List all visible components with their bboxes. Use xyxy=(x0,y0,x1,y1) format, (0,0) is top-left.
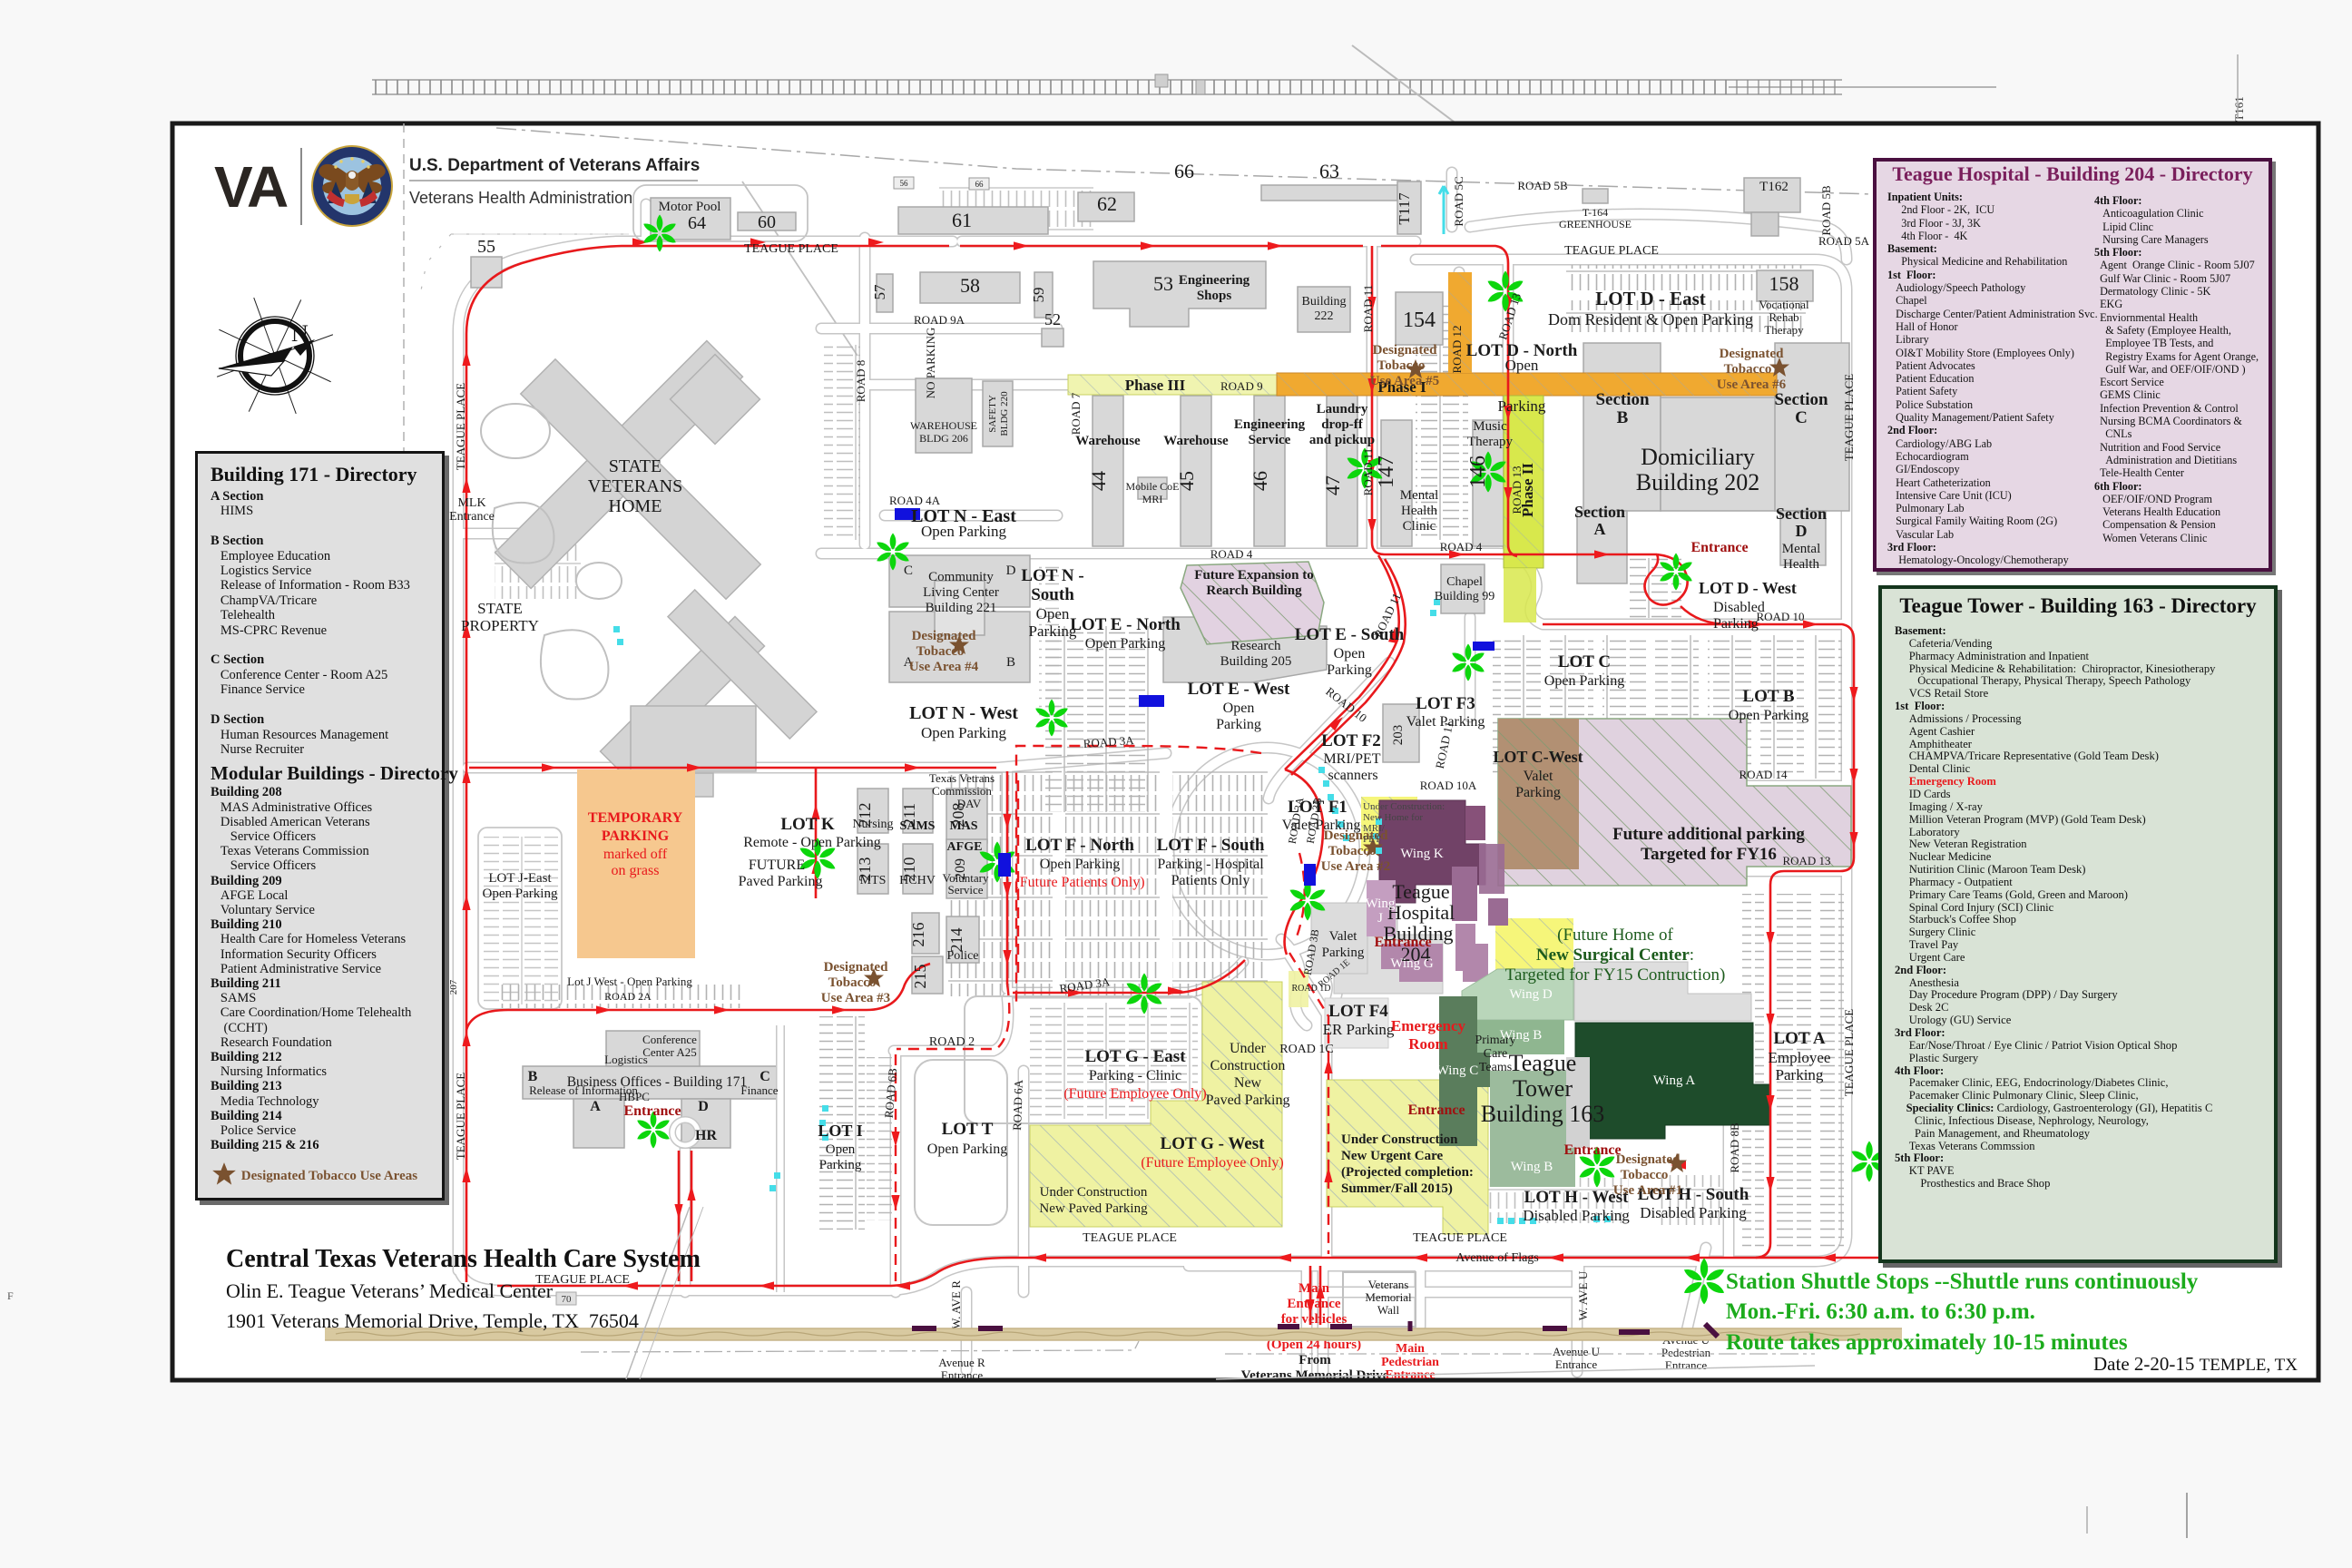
svg-text:146: 146 xyxy=(1466,456,1490,488)
svg-text:TEAGUE PLACE: TEAGUE PLACE xyxy=(1842,1009,1856,1096)
svg-text:158: 158 xyxy=(1769,272,1799,295)
svg-text:Employee: Employee xyxy=(1769,1049,1831,1066)
svg-text:Domiciliary: Domiciliary xyxy=(1641,444,1755,470)
svg-text:(Future Employee Only): (Future Employee Only) xyxy=(1063,1086,1206,1102)
svg-text:Building: Building xyxy=(1301,295,1346,309)
svg-text:Logistics: Logistics xyxy=(604,1053,648,1066)
svg-text:Center A25: Center A25 xyxy=(642,1045,697,1059)
svg-text:Research: Research xyxy=(1231,639,1281,653)
svg-text:Paved Parking: Paved Parking xyxy=(739,874,823,889)
svg-text:Open Parking: Open Parking xyxy=(927,1142,1007,1157)
svg-text:Tobacco: Tobacco xyxy=(1377,358,1426,373)
svg-text:Building 99: Building 99 xyxy=(1435,590,1495,603)
svg-text:Use Area #1: Use Area #1 xyxy=(1613,1183,1682,1198)
svg-text:Date 2-20-15 TEMPLE, TX: Date 2-20-15 TEMPLE, TX xyxy=(2093,1353,2298,1375)
svg-text:ROAD 10A: ROAD 10A xyxy=(1420,779,1477,792)
svg-text:Designated: Designated xyxy=(912,629,976,643)
svg-text:63: 63 xyxy=(1319,160,1339,182)
svg-text:Avenue of Flags: Avenue of Flags xyxy=(1455,1251,1539,1265)
svg-text:New Paved Parking: New Paved Parking xyxy=(1039,1201,1148,1216)
svg-text:Use Area #2: Use Area #2 xyxy=(1321,859,1390,874)
svg-text:TEAGUE PLACE: TEAGUE PLACE xyxy=(1413,1231,1507,1245)
svg-text:ROAD 7: ROAD 7 xyxy=(1069,392,1083,435)
svg-text:Open Parking: Open Parking xyxy=(1040,857,1120,872)
svg-text:Service: Service xyxy=(948,883,984,897)
svg-text:Targeted for FY16: Targeted for FY16 xyxy=(1641,845,1777,864)
svg-text:LOT G - West: LOT G - West xyxy=(1161,1134,1266,1153)
svg-text:Entrance: Entrance xyxy=(1374,935,1431,950)
svg-text:LOT J-East: LOT J-East xyxy=(488,871,552,886)
svg-text:Disabled Parking: Disabled Parking xyxy=(1523,1207,1630,1224)
svg-text:55: 55 xyxy=(477,237,495,257)
svg-text:Open: Open xyxy=(1505,357,1539,374)
svg-text:Station Shuttle Stops --Shuttl: Station Shuttle Stops --Shuttle runs con… xyxy=(1726,1269,2199,1294)
svg-text:T117: T117 xyxy=(1396,192,1413,225)
svg-text:Parking: Parking xyxy=(1216,717,1261,732)
svg-text:Rearch Building: Rearch Building xyxy=(1206,583,1302,598)
svg-text:N: N xyxy=(291,320,309,347)
svg-text:on grass: on grass xyxy=(612,863,660,878)
svg-text:Parking: Parking xyxy=(1498,397,1546,415)
svg-text:Tower: Tower xyxy=(1513,1075,1573,1102)
svg-text:PET: PET xyxy=(1363,834,1381,845)
svg-text:Teague: Teague xyxy=(1509,1050,1577,1076)
svg-text:Tobacco: Tobacco xyxy=(1724,362,1772,377)
svg-text:B: B xyxy=(528,1069,538,1084)
svg-text:ROAD 9: ROAD 9 xyxy=(1220,379,1263,393)
svg-text:LOT F2: LOT F2 xyxy=(1321,731,1381,750)
svg-text:Wall: Wall xyxy=(1377,1303,1400,1317)
svg-text:Use Area #3: Use Area #3 xyxy=(821,991,890,1005)
svg-text:Use Area #4: Use Area #4 xyxy=(909,660,979,674)
svg-text:Building 205: Building 205 xyxy=(1220,654,1292,669)
svg-text:Phase III: Phase III xyxy=(1125,377,1186,394)
svg-text:Parking: Parking xyxy=(819,1158,862,1172)
svg-text:TEAGUE PLACE: TEAGUE PLACE xyxy=(1564,244,1659,258)
svg-text:VA: VA xyxy=(214,154,288,220)
svg-text:Laundry: Laundry xyxy=(1317,402,1368,416)
svg-text:J: J xyxy=(1377,911,1383,926)
svg-text:207: 207 xyxy=(448,979,459,995)
svg-text:Tobacco: Tobacco xyxy=(1621,1168,1669,1182)
svg-text:Open: Open xyxy=(1334,646,1366,661)
svg-text:ROAD 5B: ROAD 5B xyxy=(1517,179,1568,192)
svg-text:Designated: Designated xyxy=(824,960,888,975)
svg-text:Designated: Designated xyxy=(1373,343,1437,358)
svg-text:Teague: Teague xyxy=(1392,880,1449,903)
svg-text:Disabled: Disabled xyxy=(1713,600,1765,615)
svg-text:Building 202: Building 202 xyxy=(1636,469,1760,495)
svg-text:STATE: STATE xyxy=(477,600,523,617)
svg-text:Disabled Parking: Disabled Parking xyxy=(1640,1204,1747,1221)
svg-text:Avenue U: Avenue U xyxy=(1553,1345,1601,1358)
svg-text:Community: Community xyxy=(928,570,994,584)
svg-text:LOT E - West: LOT E - West xyxy=(1188,680,1290,699)
svg-text:Open: Open xyxy=(1223,701,1255,716)
svg-text:Tobacco: Tobacco xyxy=(916,644,965,659)
svg-text:Wing A: Wing A xyxy=(1653,1073,1696,1088)
svg-text:(Future Patients Only): (Future Patients Only) xyxy=(1014,875,1144,890)
svg-text:Section: Section xyxy=(1774,390,1828,409)
svg-text:Pedestrian: Pedestrian xyxy=(1661,1346,1711,1359)
svg-text:C: C xyxy=(904,563,913,578)
svg-text:Avenue R: Avenue R xyxy=(938,1356,985,1369)
svg-text:216: 216 xyxy=(909,923,927,947)
svg-text:Dom Resident & Open Parking: Dom Resident & Open Parking xyxy=(1548,310,1753,328)
svg-text:LOT D - East: LOT D - East xyxy=(1595,288,1706,309)
svg-text:LOT F3: LOT F3 xyxy=(1416,694,1475,713)
svg-text:ROAD 11: ROAD 11 xyxy=(1361,448,1375,496)
svg-text:Warehouse: Warehouse xyxy=(1075,434,1141,448)
svg-text:Motor Pool: Motor Pool xyxy=(659,200,721,214)
svg-text:Mental: Mental xyxy=(1400,488,1439,503)
svg-text:Wing D: Wing D xyxy=(1509,987,1552,1002)
svg-text:LOT G - East: LOT G - East xyxy=(1084,1047,1186,1066)
svg-text:C: C xyxy=(1795,408,1808,427)
svg-text:LOT C: LOT C xyxy=(1558,652,1611,671)
svg-text:Parking: Parking xyxy=(1713,616,1759,632)
svg-text:Summer/Fall 2015): Summer/Fall 2015) xyxy=(1341,1181,1453,1196)
svg-text:New Surgical Center:: New Surgical Center: xyxy=(1536,946,1694,965)
svg-text:LOT T: LOT T xyxy=(942,1120,994,1139)
svg-text:Valet: Valet xyxy=(1524,769,1553,784)
svg-text:Section: Section xyxy=(1574,503,1625,521)
svg-text:Open Parking: Open Parking xyxy=(921,523,1006,540)
svg-text:Section: Section xyxy=(1595,390,1650,409)
svg-text:D: D xyxy=(1796,522,1808,540)
svg-text:Wing G: Wing G xyxy=(1390,956,1433,971)
svg-text:Vocational: Vocational xyxy=(1759,298,1809,311)
svg-text:PROPERTY: PROPERTY xyxy=(461,617,539,634)
svg-text:New Home for: New Home for xyxy=(1363,812,1423,823)
svg-text:ROAD 5B: ROAD 5B xyxy=(1819,185,1833,236)
svg-text:Entrance: Entrance xyxy=(1665,1358,1707,1372)
svg-text:52: 52 xyxy=(1044,310,1061,328)
svg-text:Lot J West - Open Parking: Lot J West - Open Parking xyxy=(567,975,692,988)
svg-text:66: 66 xyxy=(1174,160,1194,182)
svg-text:(Future Home of: (Future Home of xyxy=(1557,926,1673,945)
svg-text:D: D xyxy=(1006,563,1016,578)
svg-text:ROAD 9A: ROAD 9A xyxy=(914,313,965,327)
svg-text:LOT B: LOT B xyxy=(1742,687,1795,706)
svg-text:Engineering: Engineering xyxy=(1234,417,1306,432)
svg-text:Open Parking: Open Parking xyxy=(483,887,558,901)
svg-text:Under Construction:: Under Construction: xyxy=(1363,801,1445,812)
svg-text:MTS: MTS xyxy=(860,874,887,887)
svg-text:Pedestrian: Pedestrian xyxy=(1381,1356,1439,1369)
svg-text:Nursing: Nursing xyxy=(852,818,893,831)
svg-text:Wing: Wing xyxy=(1366,897,1396,911)
svg-text:Tobacco: Tobacco xyxy=(828,975,877,990)
svg-text:STATE: STATE xyxy=(609,456,661,476)
svg-text:AFGE: AFGE xyxy=(947,840,983,854)
svg-text:64: 64 xyxy=(688,213,706,233)
svg-text:Parking - Hospital: Parking - Hospital xyxy=(1157,857,1264,872)
svg-text:Entrance: Entrance xyxy=(449,510,495,524)
svg-text:Parking: Parking xyxy=(1327,662,1372,678)
svg-text:ROAD 5A: ROAD 5A xyxy=(1818,234,1870,248)
svg-text:NO PARKING: NO PARKING xyxy=(924,328,937,399)
svg-text:Mobile CoE: Mobile CoE xyxy=(1126,480,1180,493)
svg-text:A: A xyxy=(590,1099,601,1114)
svg-text:MLK: MLK xyxy=(457,496,485,510)
svg-text:Mental: Mental xyxy=(1782,542,1821,556)
svg-text:scanners: scanners xyxy=(1328,768,1377,783)
svg-text:Memorial: Memorial xyxy=(1365,1290,1412,1304)
svg-text:Open: Open xyxy=(826,1142,856,1157)
svg-text:LOT F - South: LOT F - South xyxy=(1157,836,1265,855)
svg-text:Police: Police xyxy=(947,949,979,963)
svg-text:LOT F - North: LOT F - North xyxy=(1025,836,1134,855)
svg-text:Open Parking: Open Parking xyxy=(1729,708,1808,723)
svg-text:ROAD 4: ROAD 4 xyxy=(1440,540,1483,554)
svg-text:A: A xyxy=(1594,520,1606,538)
svg-text:LOT A: LOT A xyxy=(1773,1029,1825,1048)
svg-text:Designated: Designated xyxy=(1720,347,1784,361)
svg-text:Patients Only: Patients Only xyxy=(1171,873,1250,888)
svg-text:Entrance: Entrance xyxy=(1287,1297,1341,1311)
svg-text:66: 66 xyxy=(975,180,985,189)
svg-text:HCHV: HCHV xyxy=(899,874,936,887)
svg-text:Open Parking: Open Parking xyxy=(921,724,1006,741)
svg-text:ROAD 8: ROAD 8 xyxy=(854,360,867,403)
svg-text:Conference: Conference xyxy=(642,1033,697,1046)
svg-text:TEMPORARY: TEMPORARY xyxy=(588,810,683,826)
svg-text:Care: Care xyxy=(1484,1047,1507,1061)
svg-text:ROAD 14: ROAD 14 xyxy=(1739,768,1788,781)
svg-text:South: South xyxy=(1031,585,1074,604)
svg-text:58: 58 xyxy=(960,274,980,297)
svg-text:Open Parking: Open Parking xyxy=(1544,673,1624,689)
svg-text:Remote - Open Parking: Remote - Open Parking xyxy=(743,835,881,850)
svg-text:BLDG 220: BLDG 220 xyxy=(999,391,1010,436)
svg-text:BLDG 206: BLDG 206 xyxy=(919,432,968,445)
svg-text:MRI/PET: MRI/PET xyxy=(1323,751,1380,767)
svg-text:Therapy: Therapy xyxy=(1764,323,1804,337)
svg-text:Targeted for FY15 Contruction): Targeted for FY15 Contruction) xyxy=(1505,965,1726,985)
svg-text:Rehab: Rehab xyxy=(1769,310,1798,324)
svg-text:Entrance: Entrance xyxy=(623,1103,681,1119)
svg-text:WAREHOUSE: WAREHOUSE xyxy=(910,419,977,432)
svg-text:(Projected completion:: (Projected completion: xyxy=(1341,1165,1474,1180)
svg-text:Entrance: Entrance xyxy=(1690,540,1748,555)
svg-text:147: 147 xyxy=(1375,456,1398,488)
svg-text:215: 215 xyxy=(911,965,929,989)
svg-text:ROAD 4A: ROAD 4A xyxy=(889,494,941,507)
svg-text:ROAD 5C: ROAD 5C xyxy=(1452,176,1465,226)
svg-text:Veterans: Veterans xyxy=(1368,1278,1409,1291)
svg-text:Chapel: Chapel xyxy=(1446,575,1483,589)
svg-text:Mon.-Fri. 6:30 a.m. to 6:30 p.: Mon.-Fri. 6:30 a.m. to 6:30 p.m. xyxy=(1726,1299,2035,1324)
svg-text:Emergency: Emergency xyxy=(1391,1017,1466,1034)
svg-text:FUTURE: FUTURE xyxy=(749,857,805,873)
svg-text:Parking: Parking xyxy=(1776,1066,1824,1083)
svg-text:57: 57 xyxy=(871,284,888,300)
svg-text:Entrance: Entrance xyxy=(1563,1142,1621,1158)
svg-text:VETERANS: VETERANS xyxy=(588,476,682,496)
svg-text:Paved Parking: Paved Parking xyxy=(1206,1093,1290,1108)
svg-text:154: 154 xyxy=(1403,309,1436,332)
svg-text:Under Construction: Under Construction xyxy=(1040,1185,1148,1200)
svg-text:Construction: Construction xyxy=(1210,1058,1286,1073)
svg-text:T162: T162 xyxy=(1759,180,1788,194)
svg-text:MRI: MRI xyxy=(1142,493,1163,505)
svg-text:Shops: Shops xyxy=(1197,289,1232,303)
svg-text:F: F xyxy=(7,1289,14,1302)
svg-text:Valet: Valet xyxy=(1329,929,1358,944)
svg-text:Under: Under xyxy=(1230,1041,1267,1056)
svg-text:Under Construction: Under Construction xyxy=(1341,1132,1458,1147)
svg-text:LOT D - West: LOT D - West xyxy=(1699,579,1797,597)
svg-text:Clinic: Clinic xyxy=(1403,519,1436,534)
svg-text:Health: Health xyxy=(1783,557,1819,572)
svg-text:B: B xyxy=(1617,408,1629,427)
svg-text:Entrance: Entrance xyxy=(1407,1102,1465,1118)
svg-text:Veterans Health Administration: Veterans Health Administration xyxy=(409,189,632,207)
svg-text:Engineering: Engineering xyxy=(1179,273,1250,288)
svg-text:MAS: MAS xyxy=(949,819,977,833)
svg-text:Therapy: Therapy xyxy=(1467,435,1513,449)
svg-text:ROAD 8B: ROAD 8B xyxy=(1728,1122,1741,1173)
svg-text:47: 47 xyxy=(1321,475,1344,495)
svg-text:TEAGUE PLACE: TEAGUE PLACE xyxy=(744,242,838,256)
svg-text:Texas Vetrans: Texas Vetrans xyxy=(929,771,995,785)
svg-text:GREENHOUSE: GREENHOUSE xyxy=(1559,218,1632,230)
svg-text:D: D xyxy=(698,1099,709,1114)
svg-text:ER Parking: ER Parking xyxy=(1323,1021,1395,1038)
svg-text:Teams: Teams xyxy=(1479,1061,1512,1074)
svg-text:Wing B: Wing B xyxy=(1511,1160,1553,1174)
svg-text:Parking - Clinic: Parking - Clinic xyxy=(1089,1068,1181,1083)
svg-text:203: 203 xyxy=(1391,725,1406,746)
svg-text:ROAD 2A: ROAD 2A xyxy=(604,990,652,1003)
svg-text:New Urgent Care: New Urgent Care xyxy=(1341,1149,1444,1163)
svg-text:Wing K: Wing K xyxy=(1400,847,1443,861)
svg-text:PARKING: PARKING xyxy=(602,828,670,844)
svg-text:TEAGUE PLACE: TEAGUE PLACE xyxy=(1842,374,1856,461)
svg-text:U.S. Department of Veterans Af: U.S. Department of Veterans Affairs xyxy=(409,156,700,175)
svg-text:T161: T161 xyxy=(2232,96,2246,121)
svg-text:Tobacco: Tobacco xyxy=(1328,844,1377,858)
svg-text:Entrance: Entrance xyxy=(941,1368,983,1382)
svg-text:LOT C-West: LOT C-West xyxy=(1493,748,1583,766)
svg-text:Open: Open xyxy=(1036,605,1070,622)
svg-text:TEAGUE PLACE: TEAGUE PLACE xyxy=(454,1073,467,1160)
svg-text:ROAD 11: ROAD 11 xyxy=(1361,285,1375,333)
svg-text:60: 60 xyxy=(758,212,776,232)
svg-text:LOT E - North: LOT E - North xyxy=(1070,615,1181,634)
svg-text:marked off: marked off xyxy=(603,847,668,862)
svg-text:LOT F4: LOT F4 xyxy=(1328,1002,1388,1021)
svg-text:drop-ff: drop-ff xyxy=(1321,417,1364,432)
svg-text:Service: Service xyxy=(1249,433,1291,447)
svg-text:Living Center: Living Center xyxy=(923,585,999,600)
svg-text:HBPC: HBPC xyxy=(619,1090,650,1103)
svg-text:44: 44 xyxy=(1087,471,1110,491)
svg-text:Commission: Commission xyxy=(932,784,992,798)
svg-text:Main: Main xyxy=(1298,1281,1330,1296)
svg-text:SAFETY: SAFETY xyxy=(987,395,998,433)
svg-text:Building 221: Building 221 xyxy=(926,601,997,615)
svg-text:Open Parking: Open Parking xyxy=(1085,636,1165,652)
svg-text:Use Area #6: Use Area #6 xyxy=(1717,377,1787,392)
svg-text:46: 46 xyxy=(1249,471,1271,491)
svg-text:Room: Room xyxy=(1408,1035,1447,1053)
svg-text:Phase II: Phase II xyxy=(1519,463,1536,517)
svg-text:Wing B: Wing B xyxy=(1500,1028,1542,1043)
svg-text:59: 59 xyxy=(1030,288,1047,303)
svg-text:Section: Section xyxy=(1776,505,1827,523)
svg-text:W. AVE U: W. AVE U xyxy=(1576,1270,1590,1320)
svg-text:Building 163: Building 163 xyxy=(1481,1101,1605,1127)
svg-text:Hospital: Hospital xyxy=(1387,901,1455,924)
svg-text:TEAGUE PLACE: TEAGUE PLACE xyxy=(454,383,467,470)
svg-text:From: From xyxy=(1298,1353,1331,1367)
svg-text:(Future Employee Only): (Future Employee Only) xyxy=(1141,1155,1283,1171)
svg-text:ROAD 13: ROAD 13 xyxy=(1782,854,1830,867)
svg-text:Wing C: Wing C xyxy=(1436,1063,1478,1078)
svg-text:ROAD 2: ROAD 2 xyxy=(929,1035,975,1049)
svg-text:ROAD 6A: ROAD 6A xyxy=(1010,1079,1025,1131)
svg-text:HR: HR xyxy=(695,1128,717,1143)
svg-text:and pickup: and pickup xyxy=(1309,433,1375,447)
svg-text:62: 62 xyxy=(1097,192,1117,215)
svg-text:Use Area #5: Use Area #5 xyxy=(1370,374,1439,388)
svg-text:Parking: Parking xyxy=(1322,946,1365,960)
svg-text:Health: Health xyxy=(1401,504,1437,518)
svg-text:Future additional parking: Future additional parking xyxy=(1612,825,1805,844)
svg-text:Entrance: Entrance xyxy=(1555,1357,1597,1371)
svg-text:222: 222 xyxy=(1315,309,1334,323)
svg-text:LOT N -: LOT N - xyxy=(1021,566,1083,585)
svg-text:SAMS: SAMS xyxy=(900,819,936,833)
svg-text:ROAD 4: ROAD 4 xyxy=(1210,547,1253,561)
svg-text:Parking: Parking xyxy=(1515,785,1561,800)
svg-text:56: 56 xyxy=(900,179,909,188)
svg-text:53: 53 xyxy=(1153,272,1173,295)
svg-text:Route takes approximately 10-: Route takes approximately 10-15 minutes xyxy=(1726,1330,2128,1355)
svg-text:Designated: Designated xyxy=(1616,1152,1681,1167)
svg-text:Warehouse: Warehouse xyxy=(1163,434,1229,448)
svg-text:C: C xyxy=(759,1069,770,1084)
svg-text:MRI/: MRI/ xyxy=(1363,823,1386,834)
svg-text:LOT K: LOT K xyxy=(780,815,835,834)
svg-text:HOME: HOME xyxy=(609,496,662,516)
svg-text:Finance: Finance xyxy=(740,1083,778,1097)
svg-text:New: New xyxy=(1234,1075,1262,1091)
svg-text:T-164: T-164 xyxy=(1583,206,1608,219)
svg-text:Future Expansion to: Future Expansion to xyxy=(1194,568,1313,583)
svg-text:ROAD 12: ROAD 12 xyxy=(1450,325,1464,373)
svg-text:Music: Music xyxy=(1473,419,1507,434)
svg-text:B: B xyxy=(1006,655,1015,670)
svg-text:ROAD 1C: ROAD 1C xyxy=(1279,1043,1334,1056)
svg-text:61: 61 xyxy=(952,209,972,231)
svg-text:TEAGUE PLACE: TEAGUE PLACE xyxy=(1083,1231,1177,1245)
svg-text:LOT N - West: LOT N - West xyxy=(909,703,1018,723)
svg-text:LOT I: LOT I xyxy=(818,1122,862,1140)
